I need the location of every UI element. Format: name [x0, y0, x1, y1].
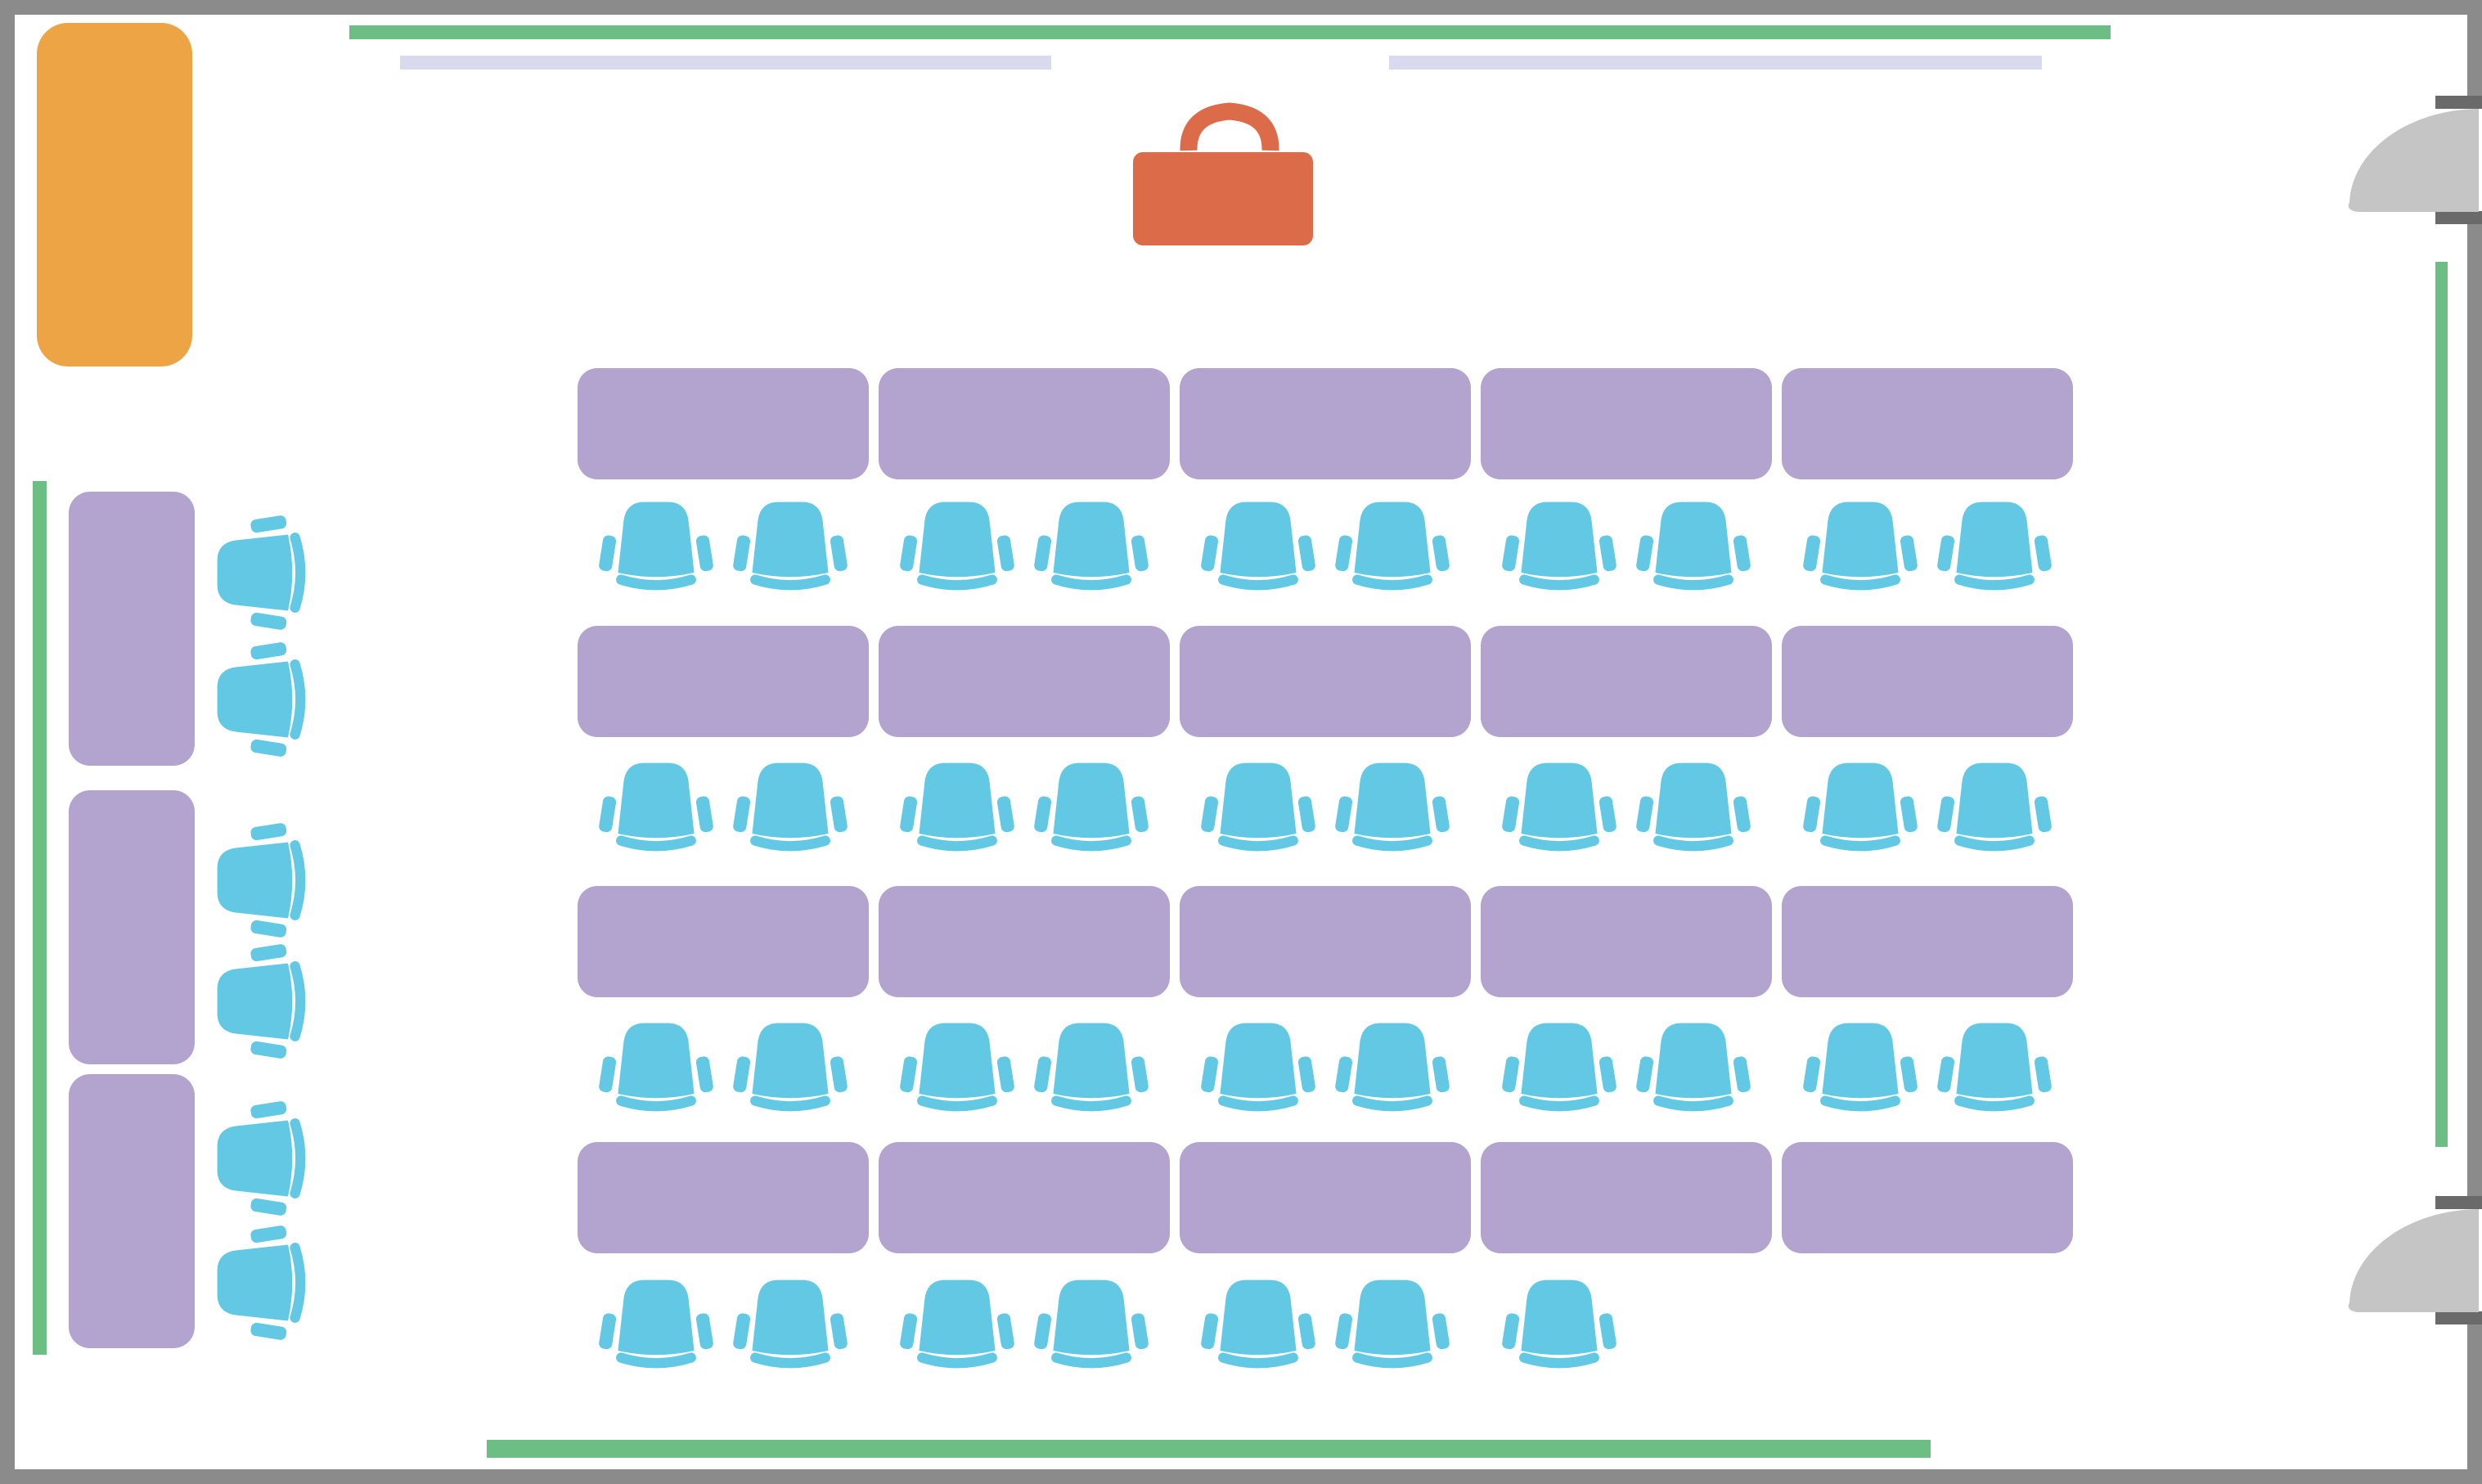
desk[interactable]: [1180, 886, 1471, 997]
desk[interactable]: [879, 368, 1170, 479]
wall-right-segment: [2467, 1324, 2482, 1484]
door-frame-bottom: [2435, 211, 2482, 224]
desk[interactable]: [1180, 626, 1471, 737]
desk[interactable]: [578, 886, 869, 997]
desk[interactable]: [578, 368, 869, 479]
desk[interactable]: [1481, 886, 1772, 997]
wall-bottom: [0, 1469, 2482, 1484]
desk[interactable]: [1180, 368, 1471, 479]
side-desk[interactable]: [69, 1074, 195, 1348]
whiteboard-left[interactable]: [33, 481, 47, 1355]
desk[interactable]: [879, 886, 1170, 997]
door-frame-top: [2435, 96, 2482, 109]
wall-top: [0, 0, 2482, 15]
floorplan-svg: [0, 0, 2482, 1484]
desk[interactable]: [1481, 368, 1772, 479]
door-frame-top: [2435, 1196, 2482, 1209]
desk[interactable]: [879, 626, 1170, 737]
whiteboard-right[interactable]: [2435, 262, 2448, 1147]
desk[interactable]: [1481, 1142, 1772, 1253]
door-frame-bottom: [2435, 1311, 2482, 1324]
briefcase-icon[interactable]: [1133, 152, 1313, 245]
window-strip-1[interactable]: [400, 56, 1051, 70]
wall-right-segment: [2467, 224, 2482, 1196]
cabinet[interactable]: [37, 23, 192, 367]
desk[interactable]: [578, 626, 869, 737]
side-desk[interactable]: [69, 492, 195, 766]
desk[interactable]: [1782, 886, 2073, 997]
wall-right-segment: [2467, 0, 2482, 96]
side-desk[interactable]: [69, 790, 195, 1064]
whiteboard-bottom[interactable]: [487, 1440, 1931, 1458]
floorplan-canvas: [0, 0, 2482, 1484]
wall-left: [0, 0, 15, 1484]
desk[interactable]: [578, 1142, 869, 1253]
desk[interactable]: [1782, 368, 2073, 479]
desk[interactable]: [1782, 626, 2073, 737]
desk[interactable]: [879, 1142, 1170, 1253]
window-strip-2[interactable]: [1389, 56, 2042, 70]
desk[interactable]: [1180, 1142, 1471, 1253]
desk[interactable]: [1782, 1142, 2073, 1253]
desk[interactable]: [1481, 626, 1772, 737]
whiteboard-top[interactable]: [349, 25, 2111, 39]
